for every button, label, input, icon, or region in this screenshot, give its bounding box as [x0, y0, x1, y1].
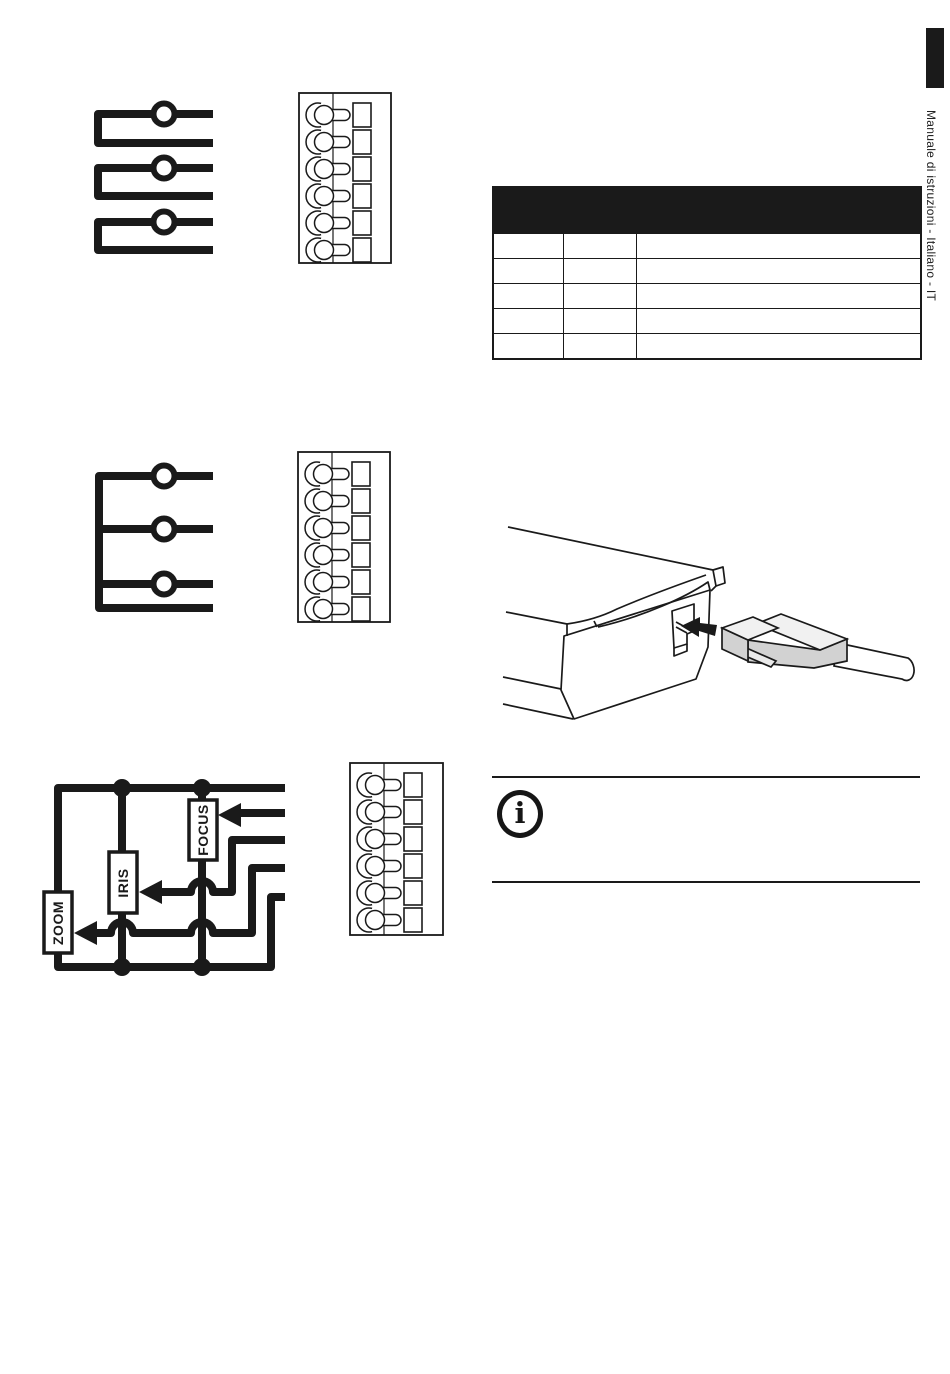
table-cell [493, 284, 563, 309]
info-icon-glyph: i [514, 799, 525, 828]
table-cell [563, 334, 636, 360]
note-divider-top [492, 776, 920, 778]
focus-arrow [218, 803, 241, 827]
table-cell [636, 259, 921, 284]
parallel-circuits-diagram [98, 104, 213, 251]
common-wire-circuits-diagram [99, 466, 213, 609]
table-row [493, 309, 921, 334]
table-cell [636, 334, 921, 360]
table-cell [493, 334, 563, 360]
pin-table [492, 186, 922, 360]
note-divider-bottom [492, 881, 920, 883]
table-cell [563, 284, 636, 309]
zoom-arrow [74, 921, 97, 945]
lamp-symbol [154, 574, 175, 595]
lamp-symbol [154, 104, 175, 125]
zoom-iris-focus-schematic: ZOOM IRIS FOCUS [44, 779, 285, 976]
table-row [493, 284, 921, 309]
pin-table-header [493, 187, 921, 233]
focus-label: FOCUS [195, 804, 211, 856]
table-cell [493, 233, 563, 259]
table-cell [563, 309, 636, 334]
lamp-symbol [154, 158, 175, 179]
lamp-symbol [154, 519, 175, 540]
terminal-block-2 [298, 452, 390, 622]
lamp-symbol [154, 466, 175, 487]
device-rj45-illustration [503, 527, 914, 719]
table-cell [636, 309, 921, 334]
housing-clip [713, 567, 725, 586]
lamp-symbol [154, 212, 175, 233]
table-cell [563, 233, 636, 259]
table-row [493, 259, 921, 284]
table-row [493, 334, 921, 360]
table-cell [563, 259, 636, 284]
iris-label: IRIS [115, 868, 131, 897]
table-row [493, 233, 921, 259]
table-cell [493, 259, 563, 284]
terminal-block-3 [350, 763, 443, 935]
terminal-block-1 [299, 93, 391, 263]
iris-arrow [139, 880, 162, 904]
table-cell [636, 284, 921, 309]
info-icon: i [497, 790, 543, 838]
table-cell [493, 309, 563, 334]
rj45-plug [722, 614, 914, 680]
page-edge-caption: Manuale di istruzioni - Italiano - IT [924, 110, 938, 301]
table-cell [636, 233, 921, 259]
zoom-label: ZOOM [50, 901, 66, 945]
section-tab [926, 28, 944, 88]
